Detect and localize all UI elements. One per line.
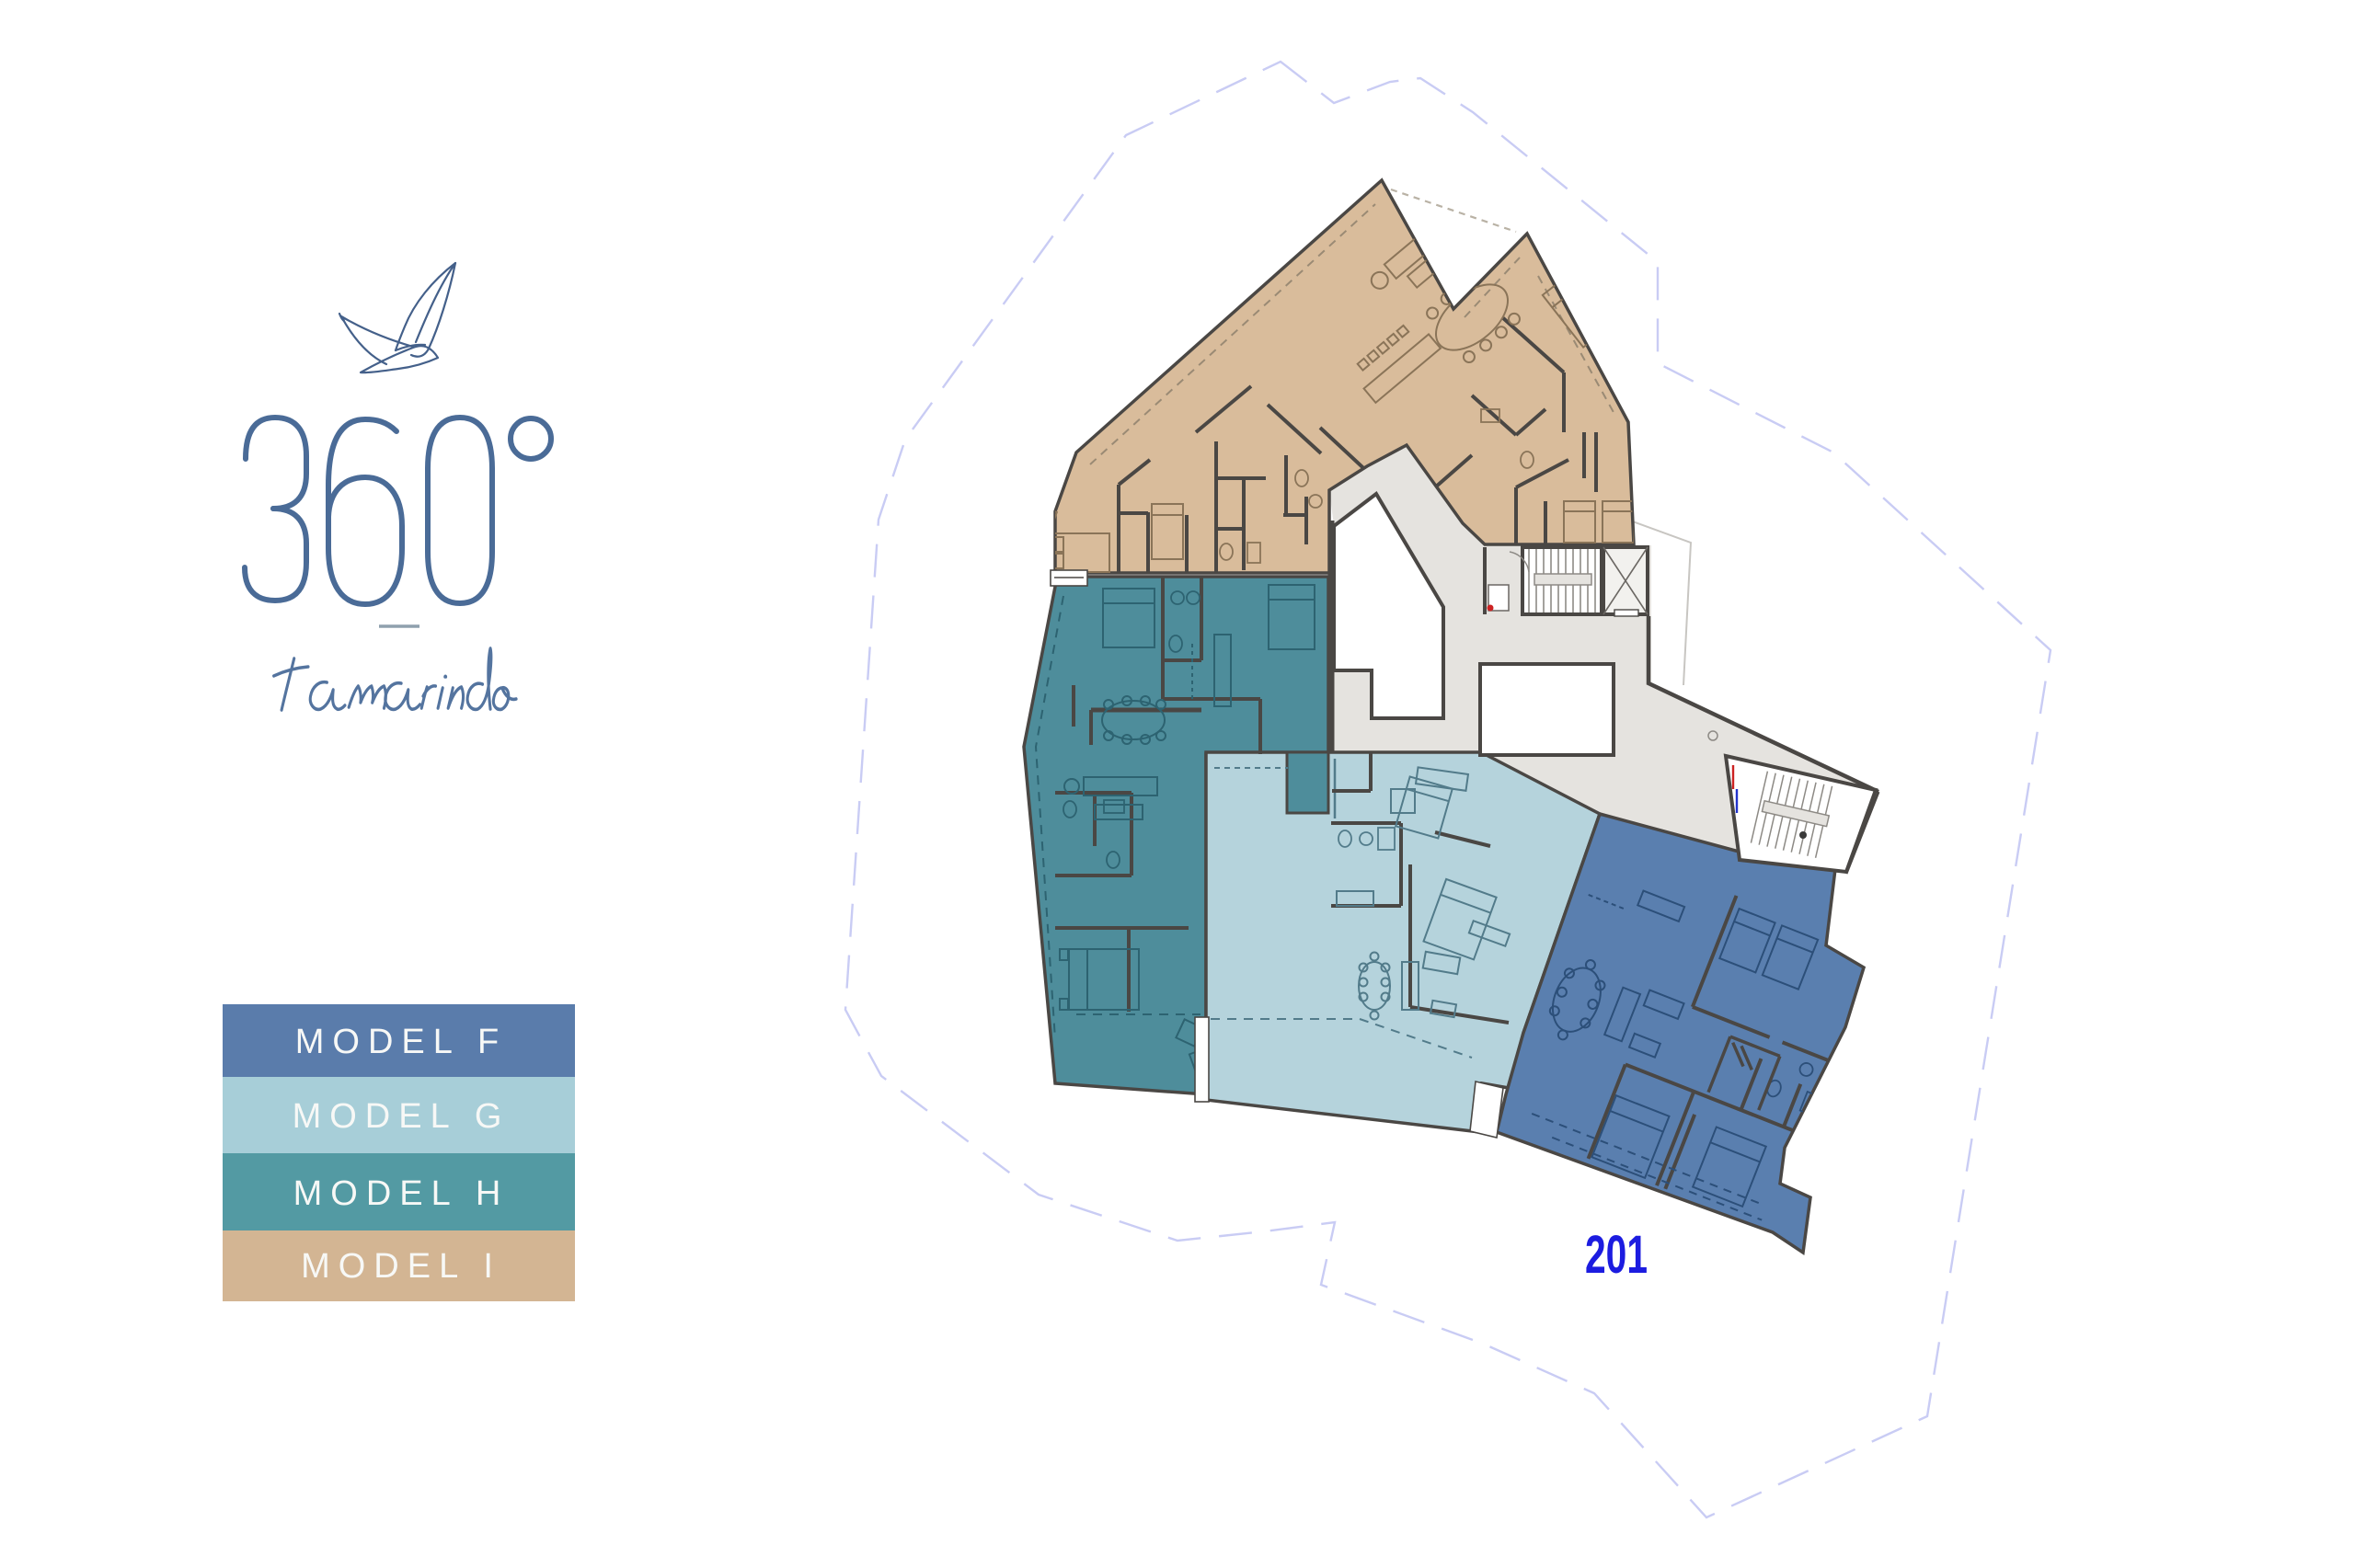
svg-text:MODEL I: MODEL I (301, 1247, 501, 1286)
svg-text:MODEL G: MODEL G (293, 1097, 511, 1136)
svg-text:MODEL H: MODEL H (293, 1174, 510, 1213)
svg-text:201: 201 (1585, 1225, 1648, 1285)
svg-text:MODEL F: MODEL F (295, 1023, 508, 1061)
